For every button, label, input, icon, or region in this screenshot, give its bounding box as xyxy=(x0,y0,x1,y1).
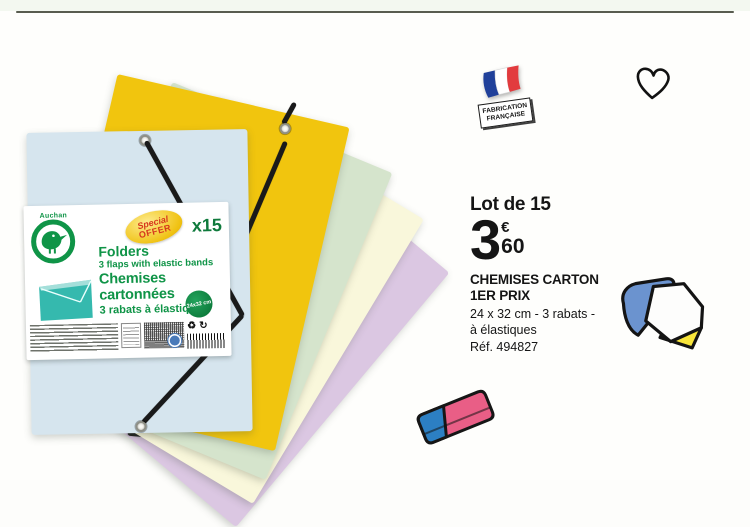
product-label: Auchan Special OFFER x15 Folders 3 flaps… xyxy=(23,202,231,360)
heart-icon xyxy=(631,63,675,111)
price: 3 € 60 xyxy=(470,217,650,263)
size-badge-text: 24x32 cm xyxy=(186,299,211,310)
eco-block: ♻ ↻ xyxy=(187,321,227,349)
barcode xyxy=(187,333,225,349)
promo-ad-page: Auchan Special OFFER x15 Folders 3 flaps… xyxy=(0,0,750,480)
eyelet xyxy=(279,122,292,135)
triman-icon xyxy=(168,334,181,347)
open-folder-sketch-icon xyxy=(606,268,727,370)
price-euros: 3 xyxy=(470,217,499,263)
eraser-icon xyxy=(406,382,508,457)
recycle-icon: ♻ xyxy=(187,322,196,332)
auchan-bird-logo-icon xyxy=(30,218,77,270)
currency-symbol: € xyxy=(501,220,524,235)
top-divider-rule xyxy=(16,11,734,13)
fine-print-text xyxy=(30,323,118,352)
quantity-multiplier: x15 xyxy=(192,215,222,237)
address-box xyxy=(120,323,141,348)
top-strip xyxy=(0,0,750,11)
label-legal-strip: ♻ ↻ xyxy=(30,321,228,355)
eyelet xyxy=(135,421,146,432)
datamatrix-block xyxy=(144,322,184,349)
folder-illustration-icon xyxy=(38,279,95,327)
elastic-band xyxy=(281,102,297,125)
price-cents: 60 xyxy=(501,236,524,257)
reuse-icon: ↻ xyxy=(199,321,208,331)
